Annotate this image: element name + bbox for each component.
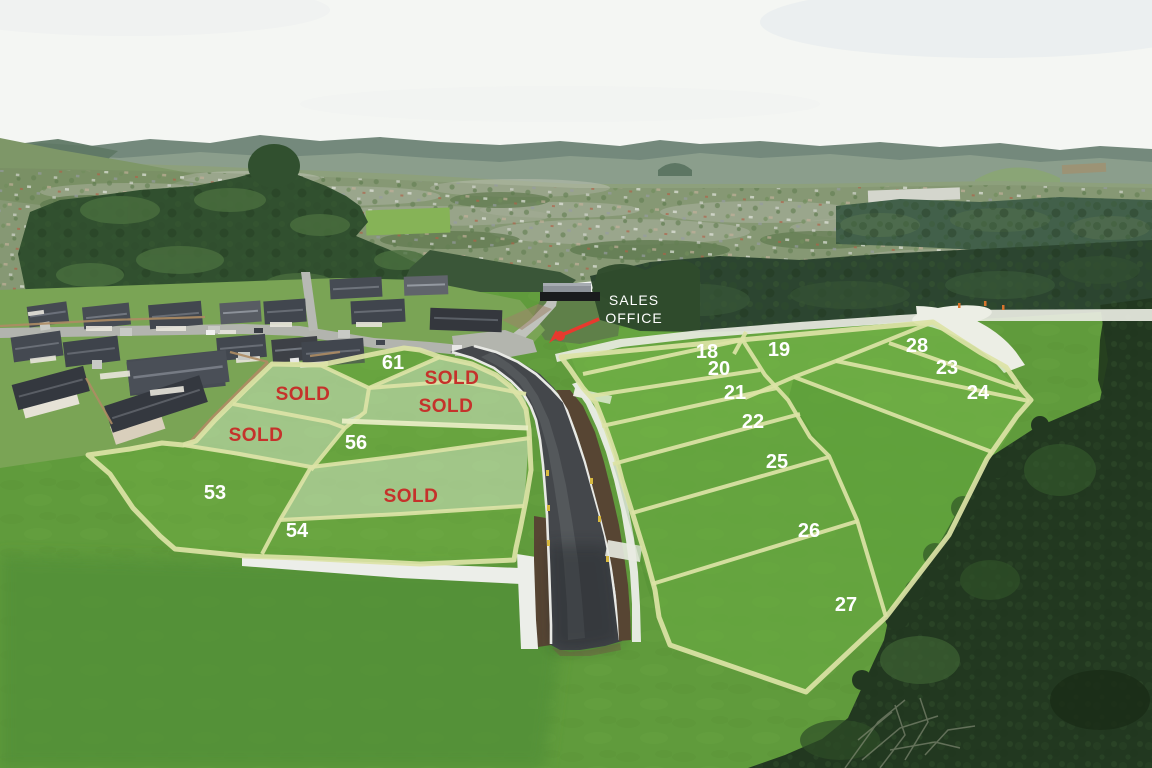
svg-text:61: 61 — [382, 352, 404, 374]
svg-text:SOLD: SOLD — [229, 425, 284, 446]
svg-text:SOLD: SOLD — [384, 486, 439, 507]
svg-text:OFFICE: OFFICE — [605, 310, 662, 326]
svg-text:SOLD: SOLD — [276, 384, 331, 405]
svg-text:26: 26 — [798, 520, 820, 542]
svg-text:SOLD: SOLD — [419, 396, 474, 417]
svg-text:56: 56 — [345, 432, 367, 454]
svg-text:21: 21 — [724, 382, 746, 404]
svg-text:54: 54 — [286, 520, 309, 542]
svg-text:25: 25 — [766, 451, 788, 473]
svg-text:23: 23 — [936, 357, 958, 379]
svg-text:SOLD: SOLD — [425, 368, 480, 389]
svg-text:53: 53 — [204, 482, 226, 504]
svg-text:20: 20 — [708, 358, 730, 380]
svg-text:27: 27 — [835, 594, 857, 616]
svg-text:19: 19 — [768, 339, 790, 361]
svg-text:SALES: SALES — [609, 292, 659, 308]
svg-text:28: 28 — [906, 335, 928, 357]
svg-text:22: 22 — [742, 411, 764, 433]
svg-text:24: 24 — [967, 382, 990, 404]
